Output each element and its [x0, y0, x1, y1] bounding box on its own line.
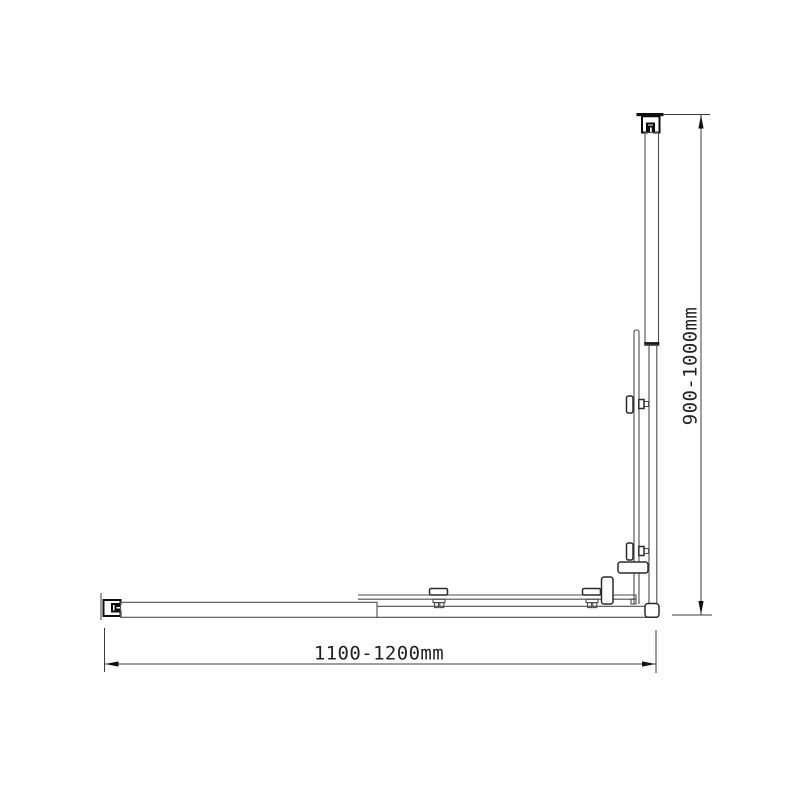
width-dimension-label: 1100-1200mm	[314, 643, 444, 665]
height-dimension-label: 900-1000mm	[680, 307, 702, 425]
shower-enclosure-plan-drawing: 900-1000mm 1100-1200mm	[0, 0, 800, 800]
clamp-knob	[639, 400, 644, 409]
corner-post	[645, 604, 659, 618]
clamp-knob	[639, 547, 644, 556]
bottom-door-knob	[602, 577, 614, 604]
clamp-plate	[627, 543, 634, 560]
clamp-plate	[627, 396, 634, 413]
clamp-plate	[430, 589, 448, 596]
right-door-knob	[618, 562, 648, 573]
drawing-page: 900-1000mm 1100-1200mm	[0, 0, 800, 800]
clamp-plate	[583, 589, 601, 596]
right-fixed-panel-end-cap	[644, 342, 659, 346]
